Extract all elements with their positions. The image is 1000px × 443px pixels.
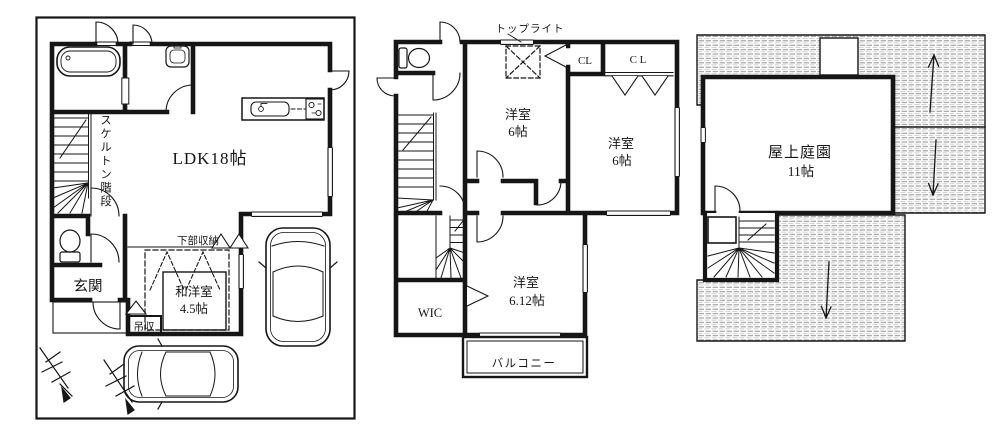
label-closet-large: C L [630, 54, 647, 66]
car-bottom [124, 339, 238, 409]
room-label-washitsu: 和洋室 [175, 284, 213, 299]
balcony [463, 337, 587, 377]
room-label-bedroom-right-size: 6帖 [612, 153, 632, 168]
hanger-marks-2f [612, 76, 668, 95]
stove [306, 99, 324, 119]
room-label-bedroom-main: 洋室 [513, 275, 539, 290]
door-wedge-wic [467, 286, 488, 306]
room-label-bedroom-center-size: 6帖 [508, 124, 528, 139]
door-top-exterior [440, 22, 460, 42]
floorplan-roof: 屋上庭園 11帖 [697, 35, 985, 341]
room-label-roof-garden: 屋上庭園 [768, 144, 832, 161]
bathtub [57, 47, 120, 76]
label-lower-storage: 下部収納 [177, 234, 219, 247]
room-label-washitsu-size: 4.5帖 [180, 301, 208, 316]
floorplan-sheet: LDK18帖 スケルトン階段 玄関 下部収納 吊収 和洋室 4.5帖 [0, 0, 1000, 443]
door-left-exterior [377, 78, 395, 96]
room-label-entrance: 玄関 [74, 278, 103, 295]
door-bedroom-center [477, 151, 503, 177]
room-label-bedroom-main-size: 6.12帖 [509, 293, 545, 308]
room-label-roof-garden-size: 11帖 [788, 164, 815, 179]
label-skeleton-stairs: スケルトン階段 [99, 114, 112, 209]
roof-stair-fill [705, 213, 777, 280]
door-corridor [537, 181, 561, 205]
kitchen-counter [242, 98, 324, 120]
staircase-2f [397, 113, 436, 213]
stair-direction-line [60, 120, 86, 158]
door-toilet-2f [433, 73, 460, 100]
garden-plants [40, 348, 134, 414]
floorplan-drawing: LDK18帖 スケルトン階段 玄関 下部収納 吊収 和洋室 4.5帖 [0, 0, 1000, 443]
door-bedroom-main [477, 216, 503, 242]
door-toilet [91, 234, 119, 262]
car-right [259, 228, 337, 346]
room-label-wic: WIC [418, 306, 442, 320]
stair-winder [53, 183, 88, 213]
door-washroom [166, 85, 193, 112]
stair-railing [89, 113, 92, 198]
door-hall-up [440, 186, 465, 211]
toilet-1f [60, 230, 80, 262]
doors-1f [91, 22, 349, 329]
floorplan-2f: トップライト 洋室 6帖 CL C L 洋室 6帖 WIC 洋室 6.12帖 バ… [377, 22, 680, 377]
room-label-balcony: バルコニー [492, 357, 557, 370]
room-label-bedroom-right: 洋室 [608, 136, 634, 151]
floorplan-1f: LDK18帖 スケルトン階段 玄関 下部収納 吊収 和洋室 4.5帖 [37, 18, 355, 419]
staircase-to-roof [436, 216, 465, 280]
room-label-bedroom-center: 洋室 [505, 107, 531, 122]
door-right-exterior [330, 71, 349, 90]
room-label-ldk: LDK18帖 [173, 149, 248, 168]
window-swing-top-left [96, 22, 118, 44]
doors-2f [377, 22, 566, 306]
staircase-1f [53, 113, 91, 213]
toilet-2f [399, 48, 430, 68]
window-swing-top-right [133, 25, 152, 44]
garden-window [700, 128, 707, 142]
label-closet-small: CL [578, 55, 592, 67]
label-hanging-storage: 吊収 [134, 321, 155, 333]
door-entrance [93, 302, 120, 329]
wash-basin [166, 44, 189, 67]
skylight [506, 46, 540, 78]
label-toplight: トップライト [496, 23, 565, 35]
door-wedge-bedroom-right [545, 45, 566, 67]
closet-sliding-door [605, 73, 673, 76]
roof-skylight-box [820, 38, 858, 75]
